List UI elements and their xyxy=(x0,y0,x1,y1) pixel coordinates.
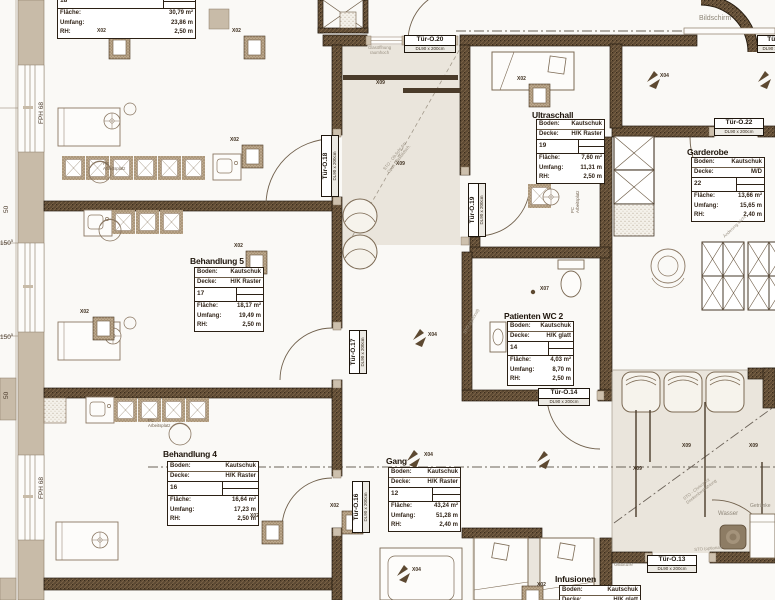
marker-x09: X09 xyxy=(749,443,758,449)
door-label-tuer-o13: Tür-O.13DL90 x 200cm xyxy=(647,555,697,573)
marker-x02: X02 xyxy=(330,503,339,509)
water-dispenser-icon xyxy=(720,525,746,549)
stool-icon xyxy=(124,103,136,115)
toilet-icon xyxy=(558,260,584,297)
door-label-tuer-o19: Tür-O.19DL90 x 200cm xyxy=(468,183,486,237)
column-block xyxy=(209,9,229,29)
sink-icon xyxy=(86,397,114,423)
corridor-mat-icon xyxy=(380,548,462,600)
sink-icon xyxy=(84,210,112,236)
room-infobox-ultraschall: Boden:Kautschuk Decke:H/K Raster 19 Fläc… xyxy=(536,119,605,184)
dim-fph68: FPH 68 xyxy=(38,102,45,124)
shaft xyxy=(323,0,363,28)
room-infobox-garderobe: Boden:Kautschuk Decke:M/D 22 Fläche:13,6… xyxy=(691,157,765,222)
armchair-icon xyxy=(343,235,377,269)
marker-x02: X02 xyxy=(230,137,239,143)
marker-x09: X09 xyxy=(633,466,642,472)
bildschirm-label: Bildschirm xyxy=(699,15,731,22)
door-label-tuer-o17: Tür-O.17DL90 x 200cm xyxy=(349,330,367,374)
marker-x02: X02 xyxy=(234,243,243,249)
marker-x02: X02 xyxy=(232,28,241,34)
desk-icon xyxy=(56,522,118,560)
recliner-icon xyxy=(622,372,660,412)
door-label-tuer-o22: Tür-O.22DL90 x 200cm xyxy=(714,118,764,136)
room-infobox-behandlung5: Boden:Kautschuk Decke:H/K Raster 17 Fläc… xyxy=(194,267,264,332)
dim-fph68: FPH 68 xyxy=(38,477,45,499)
room-number: 18 xyxy=(58,0,164,8)
room-infobox-behandlung4: Boden:Kautschuk Decke:H/K Raster 16 Fläc… xyxy=(167,461,259,526)
wardrobe-icon xyxy=(614,170,654,204)
locker-icon xyxy=(748,242,769,276)
flaeche-row: Fläche:30,79 m² xyxy=(58,9,195,19)
dim-150: 1505 xyxy=(0,332,13,341)
recliner-icon xyxy=(664,372,702,412)
marker-x02: X02 xyxy=(250,513,259,519)
door-label-tuer-o16: Tür-O.16DL90 x 200cm xyxy=(352,481,370,533)
bench-person-icon xyxy=(651,249,685,288)
marker-x09: X09 xyxy=(682,443,691,449)
bench-icon xyxy=(403,88,460,93)
bench-icon xyxy=(343,75,458,80)
armchair-icon xyxy=(343,199,377,233)
pc-arbeitsplatz-label: PCArbeitsplatz xyxy=(570,191,580,213)
marker-x04: X04 xyxy=(412,567,421,573)
room-infobox-gang: Boden:Kautschuk Decke:H/K Raster 12 Fläc… xyxy=(388,467,461,532)
getraenke-label: Getränke xyxy=(750,503,771,509)
marker-x04: X04 xyxy=(424,452,433,458)
rh-row: RH:2,50 m xyxy=(58,28,195,38)
room-infobox-patienten-wc2: Boden:Kautschuk Decke:H/K glatt 14 Fläch… xyxy=(507,321,574,386)
sink-icon xyxy=(213,154,241,180)
room-title-behandlung4: Behandlung 4 xyxy=(163,449,217,459)
glass-opening xyxy=(367,37,407,44)
stool-icon xyxy=(124,317,136,329)
locker-icon xyxy=(723,242,744,276)
office-chair-icon xyxy=(104,113,120,129)
drinks-counter-icon xyxy=(750,514,775,558)
locker-icon xyxy=(769,276,775,310)
glastuere-label: Glastüre xyxy=(614,562,633,568)
locker-icon xyxy=(748,276,769,310)
locker-icon xyxy=(723,276,744,310)
dim-50: 50 xyxy=(3,392,10,399)
locker-icon xyxy=(702,242,723,276)
dim-150: 1505 xyxy=(0,238,13,247)
pc-arbeitsplatz-label: PCArbeitsplatz xyxy=(148,418,170,428)
shelf-icon xyxy=(614,204,654,236)
room-title-patienten-wc2: Patienten WC 2 xyxy=(504,311,563,321)
window-strip xyxy=(18,243,44,332)
door-label-tuer-o18: Tür-O.18DL90 x 200cm xyxy=(321,135,339,197)
facade-left xyxy=(0,0,44,600)
marker-x02: X02 xyxy=(537,582,546,588)
chair-icon xyxy=(169,423,191,445)
office-chair-icon xyxy=(92,532,108,548)
locker-icon xyxy=(769,242,775,276)
marker-x02: X02 xyxy=(80,309,89,315)
marker-x02: X02 xyxy=(517,76,526,82)
room-infobox-infusionen: Boden:Kautschuk Decke:H/K glatt xyxy=(559,585,641,600)
door-label-tuer-o20: Tür-O.20DL90 x 200cm xyxy=(404,35,456,53)
room-infobox-18: 18 Fläche:30,79 m² Umfang:23,86 m RH:2,5… xyxy=(57,0,196,39)
door-label-partial: Tür-O.DL90 x 200cm xyxy=(757,35,775,53)
marker-x04: X04 xyxy=(660,73,669,79)
glasoeffnung-label: Glasöffnungraumhoch xyxy=(368,45,391,55)
wasser-label: Wasser xyxy=(718,511,738,517)
x02-markers xyxy=(93,36,550,600)
x07-symbol xyxy=(531,290,535,294)
room-number-row: 18 xyxy=(58,0,195,9)
pc-arbeitsplatz-label: PCArbeitsplatz xyxy=(103,161,125,171)
marker-x07: X07 xyxy=(540,286,549,292)
umfang-row: Umfang:23,86 m xyxy=(58,19,195,29)
recliner-icon xyxy=(706,372,744,412)
dim-50: 50 xyxy=(3,206,10,213)
curved-wall-fill xyxy=(701,0,753,52)
room-title-gang: Gang xyxy=(386,456,407,466)
marker-x02: X02 xyxy=(97,28,106,34)
behandlung5-furniture xyxy=(58,210,183,360)
locker-icon xyxy=(702,276,723,310)
washbasin-icon xyxy=(490,322,506,352)
office-chair-icon xyxy=(543,189,559,205)
screen-symbol xyxy=(684,28,775,34)
door-label-tuer-o14: Tür-O.14DL90 x 200cm xyxy=(538,388,590,406)
room-title-garderobe: Garderobe xyxy=(687,147,728,157)
room-title-infusionen: Infusionen xyxy=(555,574,596,584)
room-title-behandlung5: Behandlung 5 xyxy=(190,256,244,266)
bed-icon xyxy=(474,538,528,600)
marker-x09: X09 xyxy=(376,80,385,86)
floorplan-canvas: 18 Fläche:30,79 m² Umfang:23,86 m RH:2,5… xyxy=(0,0,775,600)
wardrobe-icon xyxy=(614,136,654,170)
marker-x04: X04 xyxy=(428,332,437,338)
